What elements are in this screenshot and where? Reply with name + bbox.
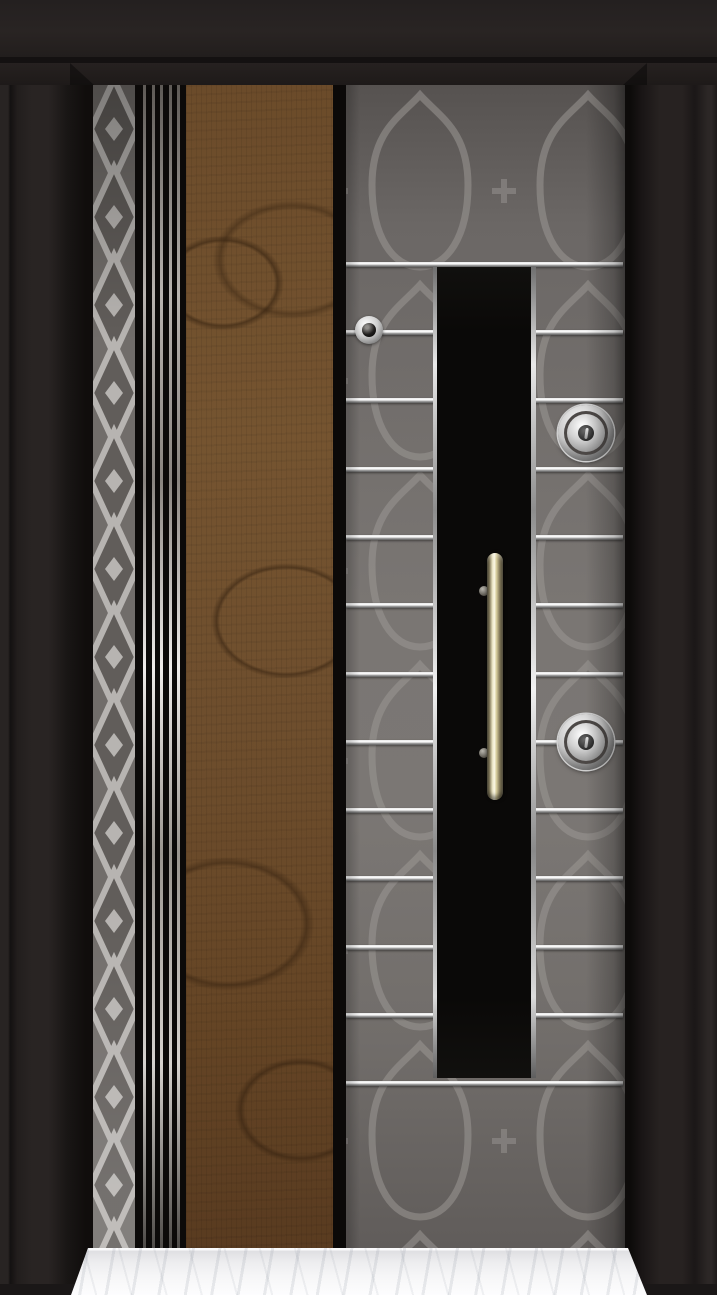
center-panel-chrome-trim-right <box>531 267 536 1078</box>
door-frame-left-column <box>0 0 93 1295</box>
door-frame-top-casing <box>0 63 717 85</box>
lock-cylinder <box>558 714 614 770</box>
security-door-photo <box>0 0 717 1295</box>
door-frame-top-band <box>0 0 717 57</box>
door-leaf <box>93 85 625 1250</box>
peephole <box>355 316 383 344</box>
lock-cylinder <box>558 405 614 461</box>
quatrefoil-gray-panel <box>346 85 625 1250</box>
door-frame-right-column <box>625 0 717 1295</box>
center-black-panel <box>437 267 531 1078</box>
chrome-line <box>143 85 146 1250</box>
chrome-line <box>152 85 155 1250</box>
chrome-line <box>177 85 180 1250</box>
peephole-lens <box>362 323 376 337</box>
black-divider-strip <box>333 85 346 1250</box>
chrome-line <box>169 85 172 1250</box>
marble-threshold <box>60 1248 660 1295</box>
vertical-chrome-lines-strip <box>135 85 186 1250</box>
diamond-strip-shading <box>93 85 135 1250</box>
wood-panel <box>186 85 333 1250</box>
diamond-lattice-strip <box>93 85 135 1250</box>
chrome-line <box>160 85 163 1250</box>
horizontal-chrome-strip <box>346 1081 623 1086</box>
door-pull-handle <box>487 553 503 800</box>
